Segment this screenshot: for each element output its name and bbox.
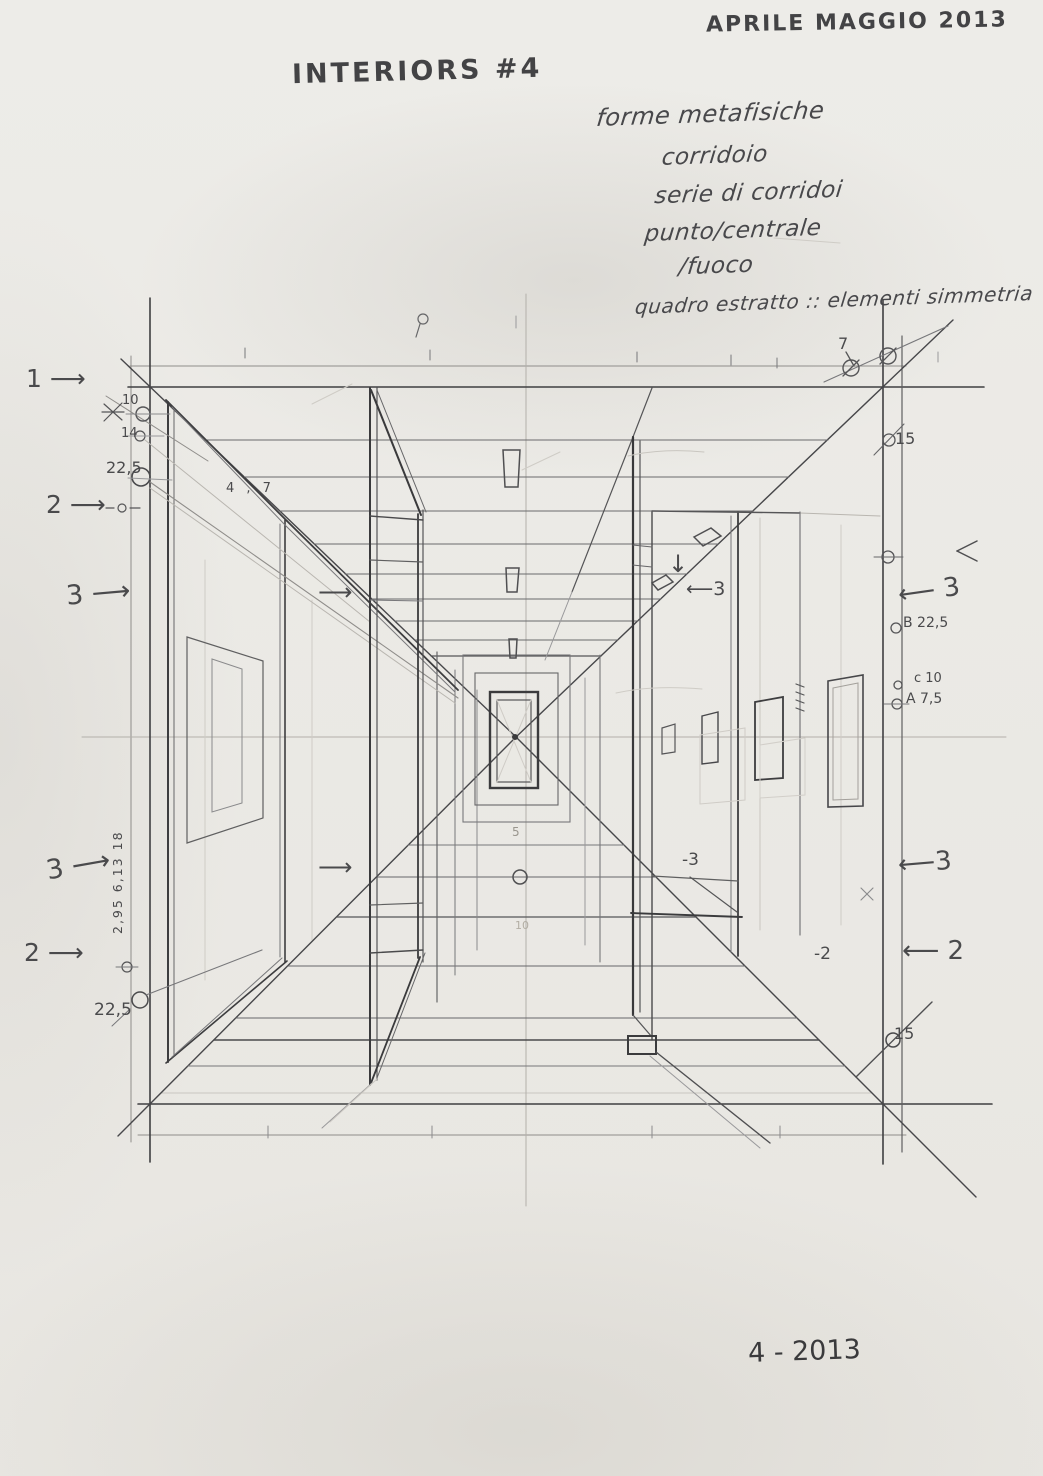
section-mark-3-left: 3 ⟶: [65, 577, 132, 610]
label-3-inner: -3: [682, 852, 699, 869]
right-wall-frames: [662, 675, 863, 807]
dim-14: 14: [121, 427, 138, 440]
point-b-label: B 22,5: [903, 616, 948, 630]
arrow-down-ceiling: ↓: [668, 552, 688, 576]
section-mark-1-left: 1 ⟶: [26, 366, 86, 391]
date-note: APRILE MAGGIO 2013: [706, 9, 1008, 36]
concept-note-5: /fuoco: [678, 254, 755, 280]
section-mark-2-left: 2 ⟶: [46, 492, 106, 517]
dim-15-top: 15: [895, 431, 915, 447]
concept-note-2: corridoio: [661, 143, 770, 170]
section-mark-3-right-lower: ⟵3: [897, 848, 953, 879]
vanishing-point: [512, 734, 518, 740]
label-2-inner: -2: [814, 946, 831, 963]
ceiling-lights: [312, 384, 721, 658]
point-c-label: c 10: [914, 672, 942, 685]
floor-joints: [188, 845, 845, 1066]
dim-10: 10: [122, 394, 139, 407]
arrow-3-inner: ⟵3: [686, 580, 725, 599]
construction-lines: [82, 294, 1006, 1206]
depth-label-10: 10: [515, 920, 529, 931]
vanishing-diagonals: [118, 320, 976, 1197]
dim-4-7: 4 , 7: [226, 482, 275, 495]
arrow-left-wall-lower: ⟶: [318, 855, 352, 879]
balloon-glyph: [418, 314, 428, 324]
dim-22-5-top: 22,5: [106, 460, 142, 476]
point-a-label: A 7,5: [906, 692, 942, 706]
section-mark-2-right-lower: ⟵ 2: [902, 938, 964, 964]
left-wall-panel: [106, 396, 458, 1063]
footer-date: 4 - 2013: [748, 1336, 862, 1367]
section-mark-2-left-lower: 2 ⟶: [24, 940, 84, 965]
ceiling-joints: [205, 440, 828, 656]
arrow-left-wall-upper: ⟶: [318, 580, 352, 604]
concept-note-4: punto/centrale: [643, 217, 822, 246]
dim-15-bottom: 15: [894, 1026, 914, 1042]
left-margin-marks: [102, 403, 262, 1026]
right-partition: [545, 388, 880, 1148]
page-title: INTERIORS #4: [292, 55, 543, 89]
dim-7: 7: [838, 336, 848, 352]
depth-label-5: 5: [512, 826, 520, 838]
vertical-dimensions: 2,95 6,13 18: [112, 830, 125, 934]
corridor-end-door: [463, 655, 570, 884]
corridor-perspective-sketch: [0, 0, 1043, 1476]
left-glass-partition: [322, 388, 426, 1128]
dim-22-5-bottom: 22,5: [94, 1002, 132, 1019]
sketch-page: { "header": { "date_note": "APRILE MAGGI…: [0, 0, 1043, 1476]
